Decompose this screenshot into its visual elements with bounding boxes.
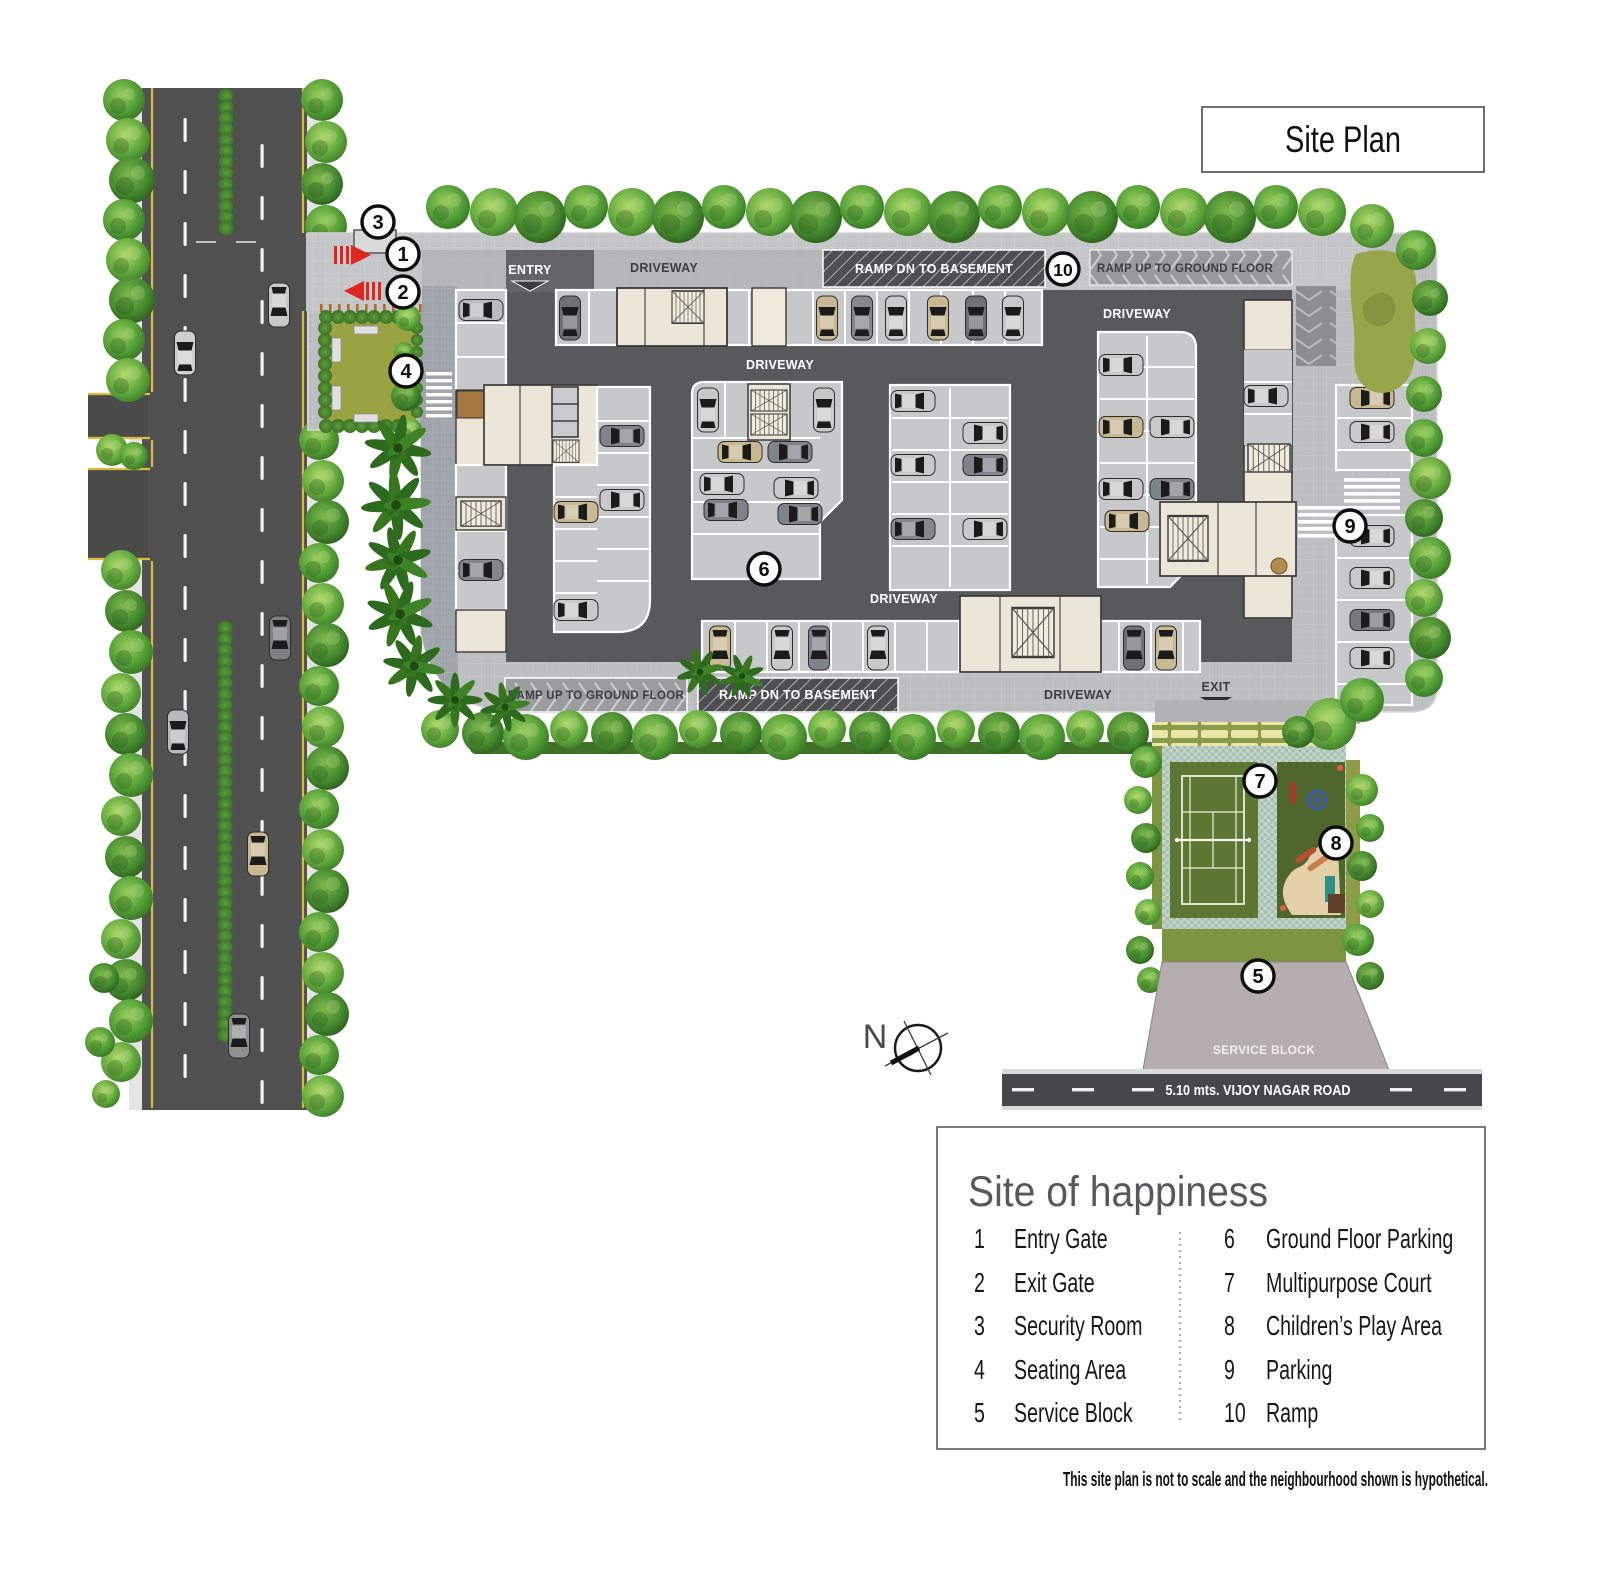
svg-text:4: 4 <box>400 361 412 383</box>
svg-text:6: 6 <box>1224 1224 1235 1255</box>
svg-text:DRIVEWAY: DRIVEWAY <box>630 261 698 275</box>
svg-text:RAMP DN TO BASEMENT: RAMP DN TO BASEMENT <box>855 262 1013 276</box>
svg-text:Multipurpose Court: Multipurpose Court <box>1266 1268 1432 1299</box>
svg-text:Site of happiness: Site of happiness <box>968 1168 1268 1216</box>
svg-text:1: 1 <box>397 244 408 266</box>
svg-text:8: 8 <box>1224 1311 1235 1342</box>
svg-text:EXIT: EXIT <box>1202 680 1231 694</box>
svg-text:This site plan is not to scale: This site plan is not to scale and the n… <box>1063 1469 1488 1491</box>
svg-text:RAMP UP TO GROUND FLOOR: RAMP UP TO GROUND FLOOR <box>508 690 685 702</box>
svg-text:Entry Gate: Entry Gate <box>1014 1224 1108 1255</box>
svg-text:10: 10 <box>1224 1398 1246 1429</box>
svg-text:4: 4 <box>974 1355 985 1386</box>
svg-text:Site Plan: Site Plan <box>1285 119 1401 160</box>
svg-text:Ground Floor Parking: Ground Floor Parking <box>1266 1224 1453 1255</box>
svg-text:Seating Area: Seating Area <box>1014 1355 1127 1386</box>
svg-text:Ramp: Ramp <box>1266 1398 1318 1429</box>
svg-text:7: 7 <box>1254 771 1265 793</box>
svg-text:ENTRY: ENTRY <box>508 263 552 277</box>
svg-text:10: 10 <box>1053 260 1073 280</box>
svg-text:RAMP DN TO BASEMENT: RAMP DN TO BASEMENT <box>719 688 877 702</box>
svg-text:5: 5 <box>1252 966 1263 988</box>
svg-text:9: 9 <box>1224 1355 1235 1386</box>
svg-text:DRIVEWAY: DRIVEWAY <box>746 358 814 372</box>
svg-text:N: N <box>863 1018 888 1056</box>
svg-text:SERVICE BLOCK: SERVICE BLOCK <box>1213 1043 1315 1057</box>
svg-text:DRIVEWAY: DRIVEWAY <box>1103 307 1171 321</box>
svg-text:5: 5 <box>974 1398 985 1429</box>
svg-text:6: 6 <box>758 559 769 581</box>
svg-text:Security Room: Security Room <box>1014 1311 1142 1342</box>
svg-text:Service Block: Service Block <box>1014 1398 1133 1429</box>
svg-text:9: 9 <box>1344 516 1355 538</box>
svg-text:8: 8 <box>1330 833 1341 855</box>
svg-text:3: 3 <box>974 1311 985 1342</box>
svg-text:Children’s Play Area: Children’s Play Area <box>1266 1311 1443 1342</box>
svg-text:RAMP UP TO GROUND FLOOR: RAMP UP TO GROUND FLOOR <box>1097 263 1274 275</box>
svg-text:DRIVEWAY: DRIVEWAY <box>1044 688 1112 702</box>
svg-text:2: 2 <box>974 1268 985 1299</box>
svg-text:5.10 mts. VIJOY NAGAR ROAD: 5.10 mts. VIJOY NAGAR ROAD <box>1166 1082 1351 1099</box>
svg-text:7: 7 <box>1224 1268 1235 1299</box>
svg-text:2: 2 <box>397 282 408 304</box>
svg-text:DRIVEWAY: DRIVEWAY <box>870 592 938 606</box>
svg-text:Exit Gate: Exit Gate <box>1014 1268 1095 1299</box>
svg-text:1: 1 <box>974 1224 985 1255</box>
svg-text:Parking: Parking <box>1266 1355 1332 1386</box>
svg-text:3: 3 <box>372 212 383 234</box>
